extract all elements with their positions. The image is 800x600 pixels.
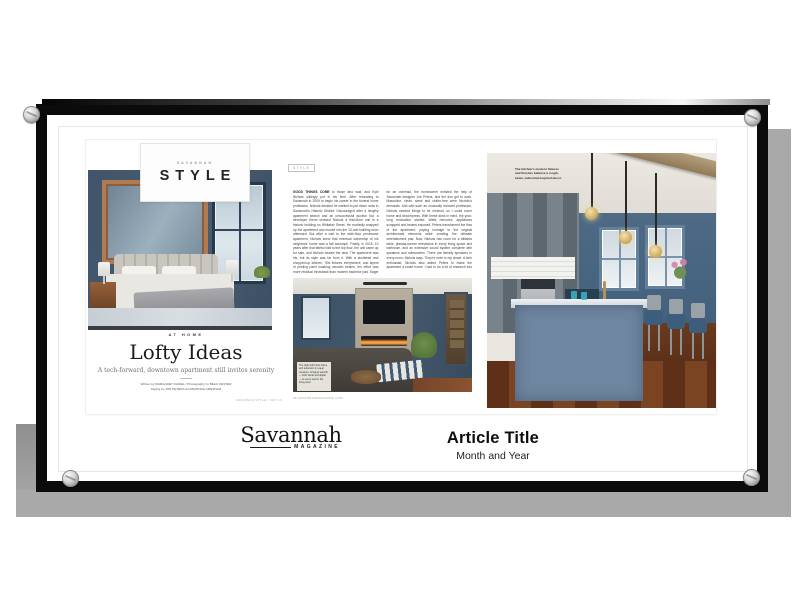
magazine-logo-wordmark: Savannah: [236, 425, 346, 446]
article-date-label: Month and Year: [418, 450, 568, 462]
kitchen-photo: The kitchen's modern fixtures and finish…: [487, 153, 716, 408]
magazine-logo: Savannah MAGAZINE: [236, 425, 346, 450]
pendant-stem-3: [655, 173, 657, 247]
article-lead-in: GOOD THINGS COME: [293, 190, 330, 194]
magazine-spread: SAVANNAH STYLE AT HOME Lofty Ideas A tec…: [86, 140, 716, 414]
style-card-title: STYLE: [141, 168, 249, 184]
left-page-footer: SAVANNAH STYLE | NOV 19: [86, 398, 282, 402]
pendant-stem-2: [625, 161, 627, 233]
bedroom-plant: [254, 266, 270, 278]
bar-stool-1: [645, 311, 663, 325]
byline-stylists: Styling by JON PETERS and BROOKE GRESHAM: [86, 387, 286, 391]
living-plant: [411, 332, 437, 358]
pendant-globe-3: [649, 245, 662, 258]
table-lamp-left: [98, 262, 110, 276]
bar-stool-2: [667, 315, 685, 329]
wall-tv: [363, 300, 405, 324]
article-headline: Lofty Ideas: [86, 340, 286, 364]
standoff-screw-bottom-right: [743, 469, 760, 486]
table-lamp-right: [226, 260, 238, 274]
pendant-globe-2: [619, 231, 632, 244]
style-card-kicker: SAVANNAH: [141, 161, 249, 165]
byline-writer-photographer: Written by MARGARET DANIEL / Photography…: [86, 382, 286, 386]
frame-bottom-shadow-left: [16, 490, 66, 517]
section-kicker: AT HOME: [86, 332, 286, 337]
standoff-screw-top-left: [23, 106, 40, 123]
living-photo-caption: The high wall hosts flame and television…: [297, 362, 331, 391]
living-wood-floor: [403, 378, 472, 392]
subway-tile-backsplash: [491, 257, 575, 279]
credits-divider: [180, 378, 192, 379]
middle-page-footer: 58 SAVANNAHMAGAZINE.COM: [293, 396, 472, 400]
living-window: [301, 296, 331, 340]
article-label-block: Article Title Month and Year: [418, 429, 568, 462]
bar-stool-3: [689, 319, 707, 333]
blue-glassware-2: [581, 292, 587, 300]
flower-arrangement: [668, 257, 690, 283]
blue-glassware-1: [571, 291, 577, 299]
pendant-globe-1: [585, 207, 598, 220]
style-tag-box: STYLE: [288, 164, 315, 172]
standoff-screw-bottom-left: [62, 470, 79, 487]
living-room-photo: The high wall hosts flame and television…: [293, 278, 472, 392]
logo-underline-rule: [250, 447, 291, 448]
style-section-card: SAVANNAH STYLE: [140, 143, 250, 202]
article-body-rest: to those who wait, and Kyle Nichols will…: [293, 190, 472, 274]
coffee-table: [351, 370, 381, 384]
magazine-logo-subtext: MAGAZINE: [294, 444, 340, 450]
pendant-stem-1: [591, 153, 593, 209]
ceiling-fan: [363, 282, 407, 285]
linear-fireplace: [361, 336, 407, 346]
doorway-shelves: [450, 300, 464, 350]
kitchen-photo-caption: The kitchen's modern fixtures and finish…: [515, 167, 563, 180]
brass-faucet: [603, 281, 606, 301]
frame-top-bevel: [42, 99, 770, 105]
granite-waterfall-island: [515, 305, 643, 401]
article-body-text: GOOD THINGS COME to those who wait, and …: [293, 190, 472, 278]
framed-article-mockup: SAVANNAH STYLE AT HOME Lofty Ideas A tec…: [0, 0, 800, 600]
article-title-label: Article Title: [418, 429, 568, 448]
standoff-screw-top-right: [744, 109, 761, 126]
article-subtitle: A tech-forward, downtown apartment still…: [86, 367, 286, 374]
bedroom-floor: [88, 326, 272, 330]
nightstand: [90, 282, 116, 308]
